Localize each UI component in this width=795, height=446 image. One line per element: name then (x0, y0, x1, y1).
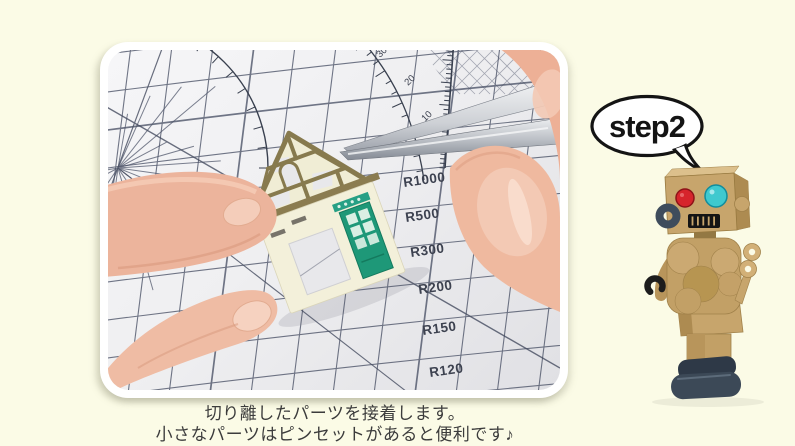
mat-label-r200: R200 (417, 277, 453, 297)
instruction-photo-frame: 30 20 10 R1000 R500 R300 R200 R150 R120 (100, 42, 568, 398)
instruction-photo: 30 20 10 R1000 R500 R300 R200 R150 R120 (108, 50, 560, 390)
mat-label-r120: R120 (428, 360, 464, 380)
mat-label-r150: R150 (421, 318, 457, 338)
robot-torso (667, 238, 742, 314)
robot-eye-left (676, 189, 694, 207)
robot-eye-right (705, 185, 727, 207)
robot-feet (670, 356, 741, 400)
robot-head (660, 166, 751, 234)
caption-line-1: 切り離したパーツを接着します。 (90, 403, 580, 424)
mat-label-r1000: R1000 (402, 169, 446, 190)
caption: 切り離したパーツを接着します。 小さなパーツはピンセットがあると便利です♪ (90, 403, 580, 445)
step-label: step2 (609, 109, 685, 144)
mat-curved-scale (360, 50, 424, 180)
robot-mouth-grill (688, 214, 720, 228)
robot-right-ear (735, 197, 750, 212)
robot-foot-front (670, 371, 741, 400)
cutting-mat-scene: 30 20 10 R1000 R500 R300 R200 R150 R120 (108, 50, 560, 390)
caption-line-2: 小さなパーツはピンセットがあると便利です♪ (90, 424, 580, 445)
mat-label-r300: R300 (409, 240, 445, 260)
robot-figure (638, 164, 782, 408)
left-hand (108, 172, 277, 390)
robot-shadow (652, 397, 764, 407)
ruler-number-20: 20 (402, 73, 417, 88)
